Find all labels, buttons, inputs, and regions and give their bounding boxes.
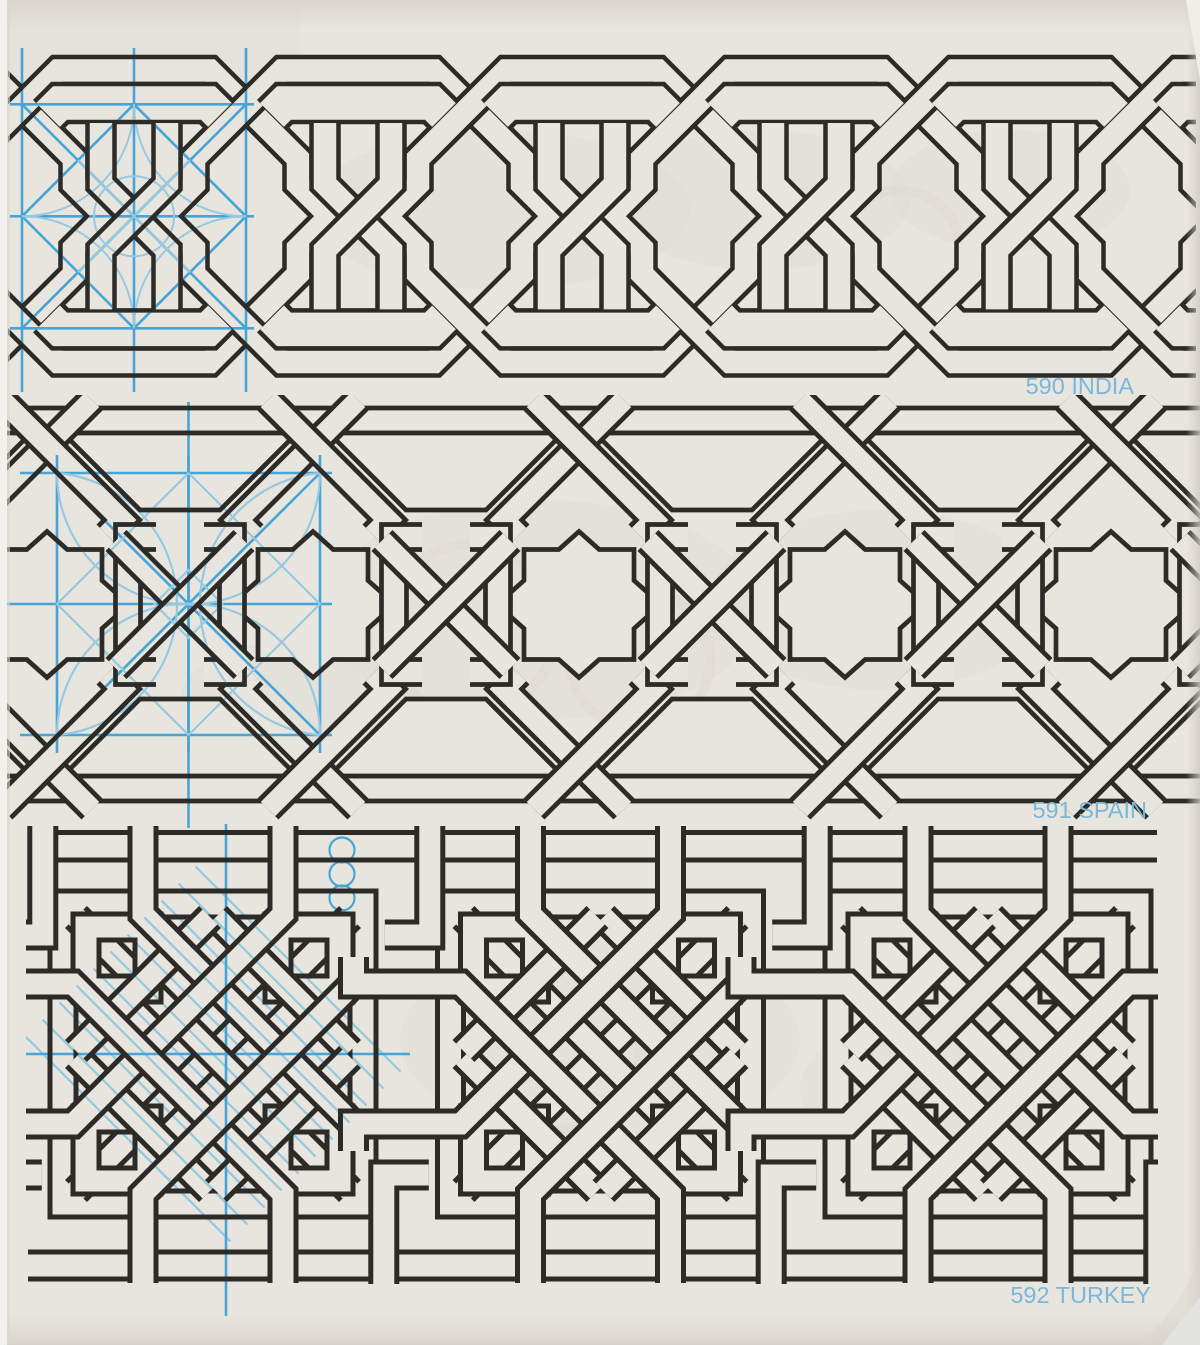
svg-text:592 TURKEY: 592 TURKEY (1010, 1282, 1151, 1308)
svg-text:590 INDIA: 590 INDIA (1026, 373, 1135, 399)
svg-text:591 SPAIN: 591 SPAIN (1032, 797, 1147, 823)
